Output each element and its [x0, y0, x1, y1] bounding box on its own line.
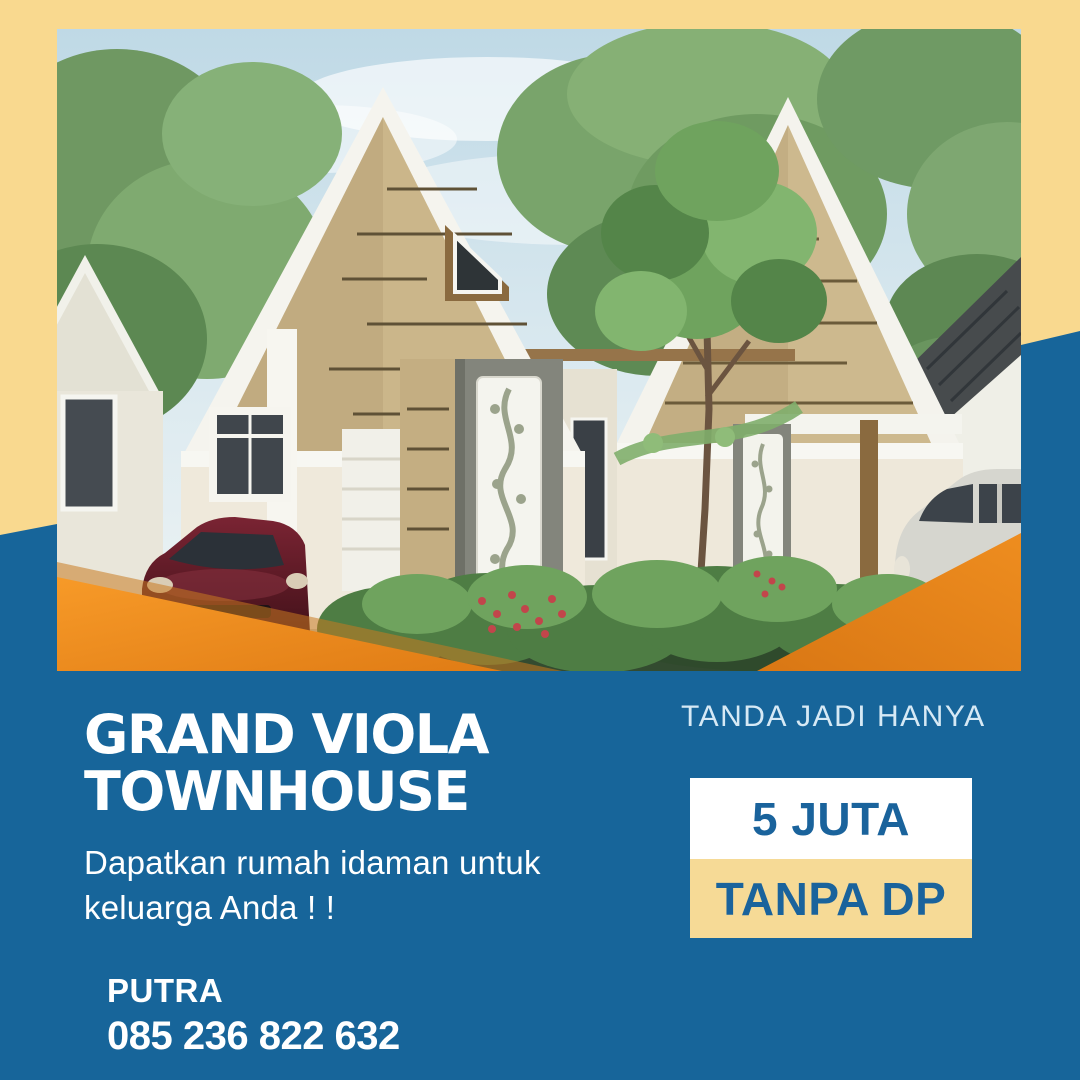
- blue-left-edge: [0, 524, 57, 671]
- no-downpayment-text: TANPA DP: [716, 872, 947, 926]
- price-box: 5 JUTA: [690, 778, 972, 859]
- tagline-line1: Dapatkan rumah idaman untuk: [84, 840, 541, 885]
- front-window: [209, 407, 291, 502]
- property-photo: HH LM 968: [57, 29, 1021, 671]
- offer-label: TANDA JADI HANYA: [681, 700, 981, 734]
- tagline-line2: keluarga Anda ! !: [84, 885, 541, 930]
- no-downpayment-box: TANPA DP: [690, 859, 972, 938]
- contact-name: PUTRA: [107, 972, 223, 1010]
- photo-illustration: HH LM 968: [57, 29, 1021, 671]
- blue-right-edge: [1021, 331, 1080, 671]
- garage-door: [342, 429, 400, 591]
- headline-line1: GRAND VIOLA: [84, 706, 488, 763]
- contact-phone: 085 236 822 632: [107, 1014, 400, 1059]
- poster-canvas: HH LM 968: [0, 0, 1080, 1080]
- price-text: 5 JUTA: [752, 792, 910, 846]
- headline: GRAND VIOLA TOWNHOUSE: [84, 706, 488, 820]
- tagline: Dapatkan rumah idaman untuk keluarga And…: [84, 840, 541, 930]
- headline-line2: TOWNHOUSE: [84, 763, 488, 820]
